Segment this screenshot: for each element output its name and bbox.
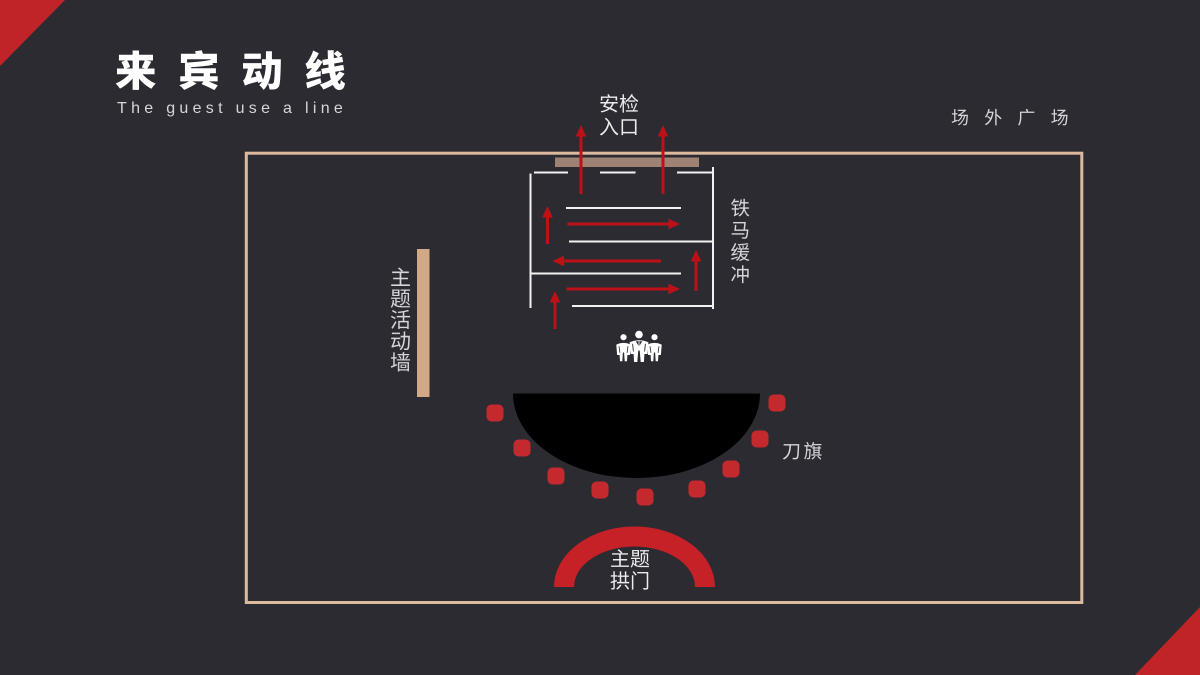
svg-text:The guest use a line: The guest use a line [117, 100, 347, 117]
